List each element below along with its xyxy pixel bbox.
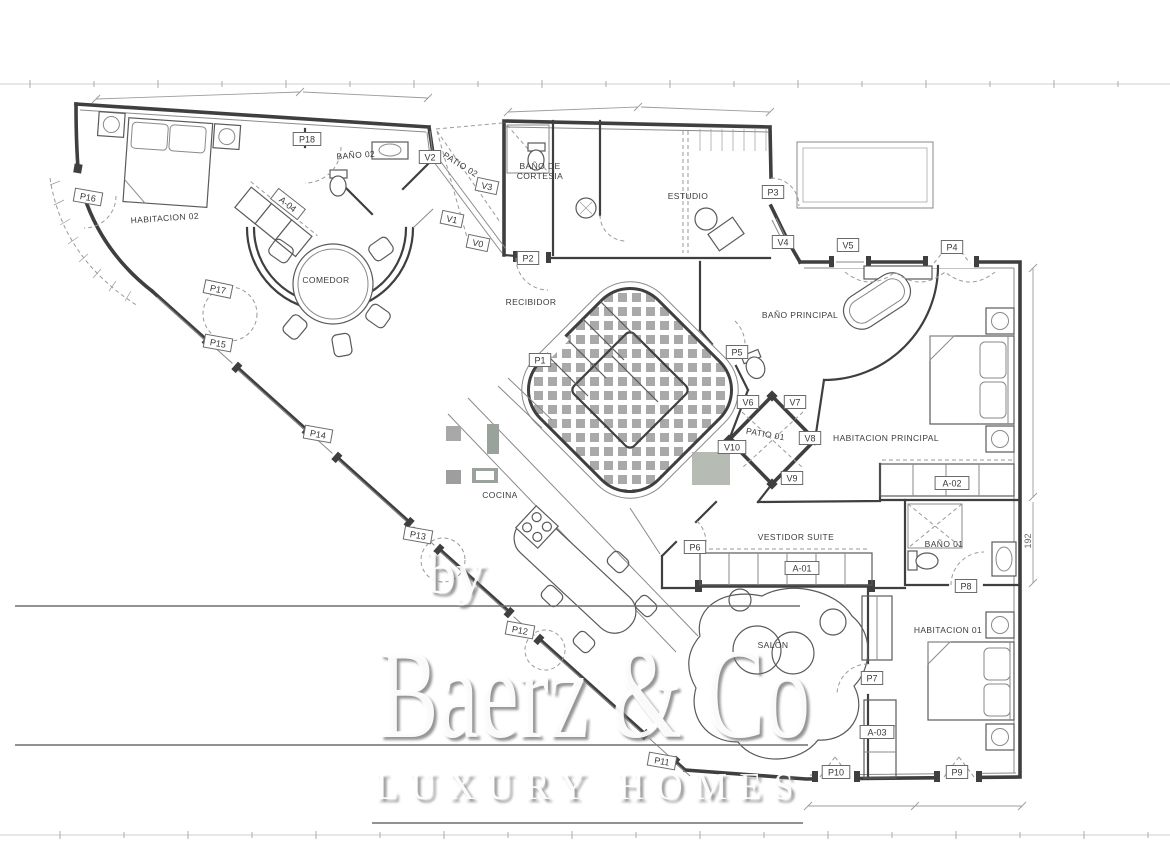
appliance-icon <box>692 452 730 485</box>
svg-text:V8: V8 <box>804 434 815 444</box>
opening-label-v5: V5 <box>837 239 858 252</box>
nightstand-icon <box>986 308 1014 334</box>
nightstand-icon <box>98 112 126 138</box>
opening-label-p4: P4 <box>941 241 962 254</box>
opening-label-v8: V8 <box>799 432 820 445</box>
watermark-tagline: LUXURY HOMES <box>376 766 806 808</box>
room-label-vestidor-suite: VESTIDOR SUITE <box>758 532 834 542</box>
opening-label-v4: V4 <box>772 236 793 249</box>
appliance-icon <box>487 424 499 454</box>
top-ruler <box>0 80 1170 88</box>
opening-label-a-03: A-03 <box>860 726 894 739</box>
room-label-cocina: COCINA <box>482 490 517 500</box>
room-label-comedor: COMEDOR <box>302 275 349 285</box>
room-label-ba-o-principal: BAÑO PRINCIPAL <box>762 310 838 320</box>
watermark: by Baerz & Co LUXURY HOMES <box>15 541 810 823</box>
svg-text:V5: V5 <box>842 241 853 251</box>
room-label-habitacion-principal: HABITACION PRINCIPAL <box>833 433 939 443</box>
svg-text:P5: P5 <box>731 348 742 358</box>
svg-text:V4: V4 <box>777 238 788 248</box>
side-table-icon <box>820 609 846 635</box>
room-label-habitacion-01: HABITACION 01 <box>914 625 982 635</box>
room-label-ba-o-de: BAÑO DE <box>519 161 560 171</box>
nightstand-icon <box>986 426 1014 452</box>
svg-text:V7: V7 <box>789 398 800 408</box>
opening-label-v6: V6 <box>737 396 758 409</box>
opening-label-v7: V7 <box>784 396 805 409</box>
opening-label-p16: P16 <box>73 188 102 206</box>
appliance-icon <box>446 470 461 484</box>
room-label-salon: SALON <box>758 640 789 650</box>
opening-label-p17: P17 <box>203 280 233 298</box>
svg-text:A-02: A-02 <box>942 479 961 489</box>
master-bedroom-furniture <box>880 308 1014 496</box>
opening-label-v2: V2 <box>419 151 440 164</box>
room-label-patio-01: PATIO 01 <box>745 426 785 443</box>
bed-principal <box>930 336 1014 424</box>
opening-label-p6: P6 <box>684 541 705 554</box>
dimension-label-192: 192 <box>1023 533 1033 548</box>
room-label-estudio: ESTUDIO <box>668 191 709 201</box>
opening-label-p10: P10 <box>822 766 850 779</box>
watermark-by: by <box>427 541 485 606</box>
svg-text:A-01: A-01 <box>792 564 811 574</box>
svg-text:P2: P2 <box>522 254 533 264</box>
side-table-icon <box>729 589 751 611</box>
svg-text:P10: P10 <box>828 768 844 778</box>
toilet-icon <box>916 553 938 569</box>
opening-label-v0: V0 <box>466 234 490 251</box>
chair-icon <box>695 208 717 230</box>
floorplan-canvas: by Baerz & Co LUXURY HOMES HABITACION 02… <box>0 0 1170 860</box>
opening-label-p3: P3 <box>762 186 783 199</box>
opening-label-p5: P5 <box>726 346 747 359</box>
svg-text:P7: P7 <box>866 674 877 684</box>
room-label-ba-o-02: BAÑO 02 <box>336 149 375 162</box>
desk-icon <box>708 217 744 251</box>
room-label-habitacion-02: HABITACION 02 <box>130 211 199 226</box>
svg-text:P18: P18 <box>299 135 315 145</box>
bedroom-02-furniture <box>93 112 241 210</box>
svg-text:V2: V2 <box>424 153 435 163</box>
opening-label-a-02: A-02 <box>935 477 969 490</box>
svg-text:P3: P3 <box>767 188 778 198</box>
svg-text:V6: V6 <box>742 398 753 408</box>
svg-text:P1: P1 <box>534 356 545 366</box>
room-label-recibidor: RECIBIDOR <box>506 297 557 307</box>
appliance-icon <box>446 426 461 441</box>
svg-text:P9: P9 <box>951 768 962 778</box>
nightstand-icon <box>213 124 241 150</box>
opening-label-v10: V10 <box>718 441 746 454</box>
opening-label-p2: P2 <box>517 252 538 265</box>
room-label-ba-o-01: BAÑO 01 <box>925 539 964 549</box>
svg-text:A-03: A-03 <box>867 728 886 738</box>
opening-label-p18: P18 <box>293 133 321 146</box>
nightstand-icon <box>986 612 1014 638</box>
opening-label-p8: P8 <box>955 580 976 593</box>
opening-label-p7: P7 <box>861 672 882 685</box>
bottom-ruler <box>0 831 1170 839</box>
opening-label-a-01: A-01 <box>785 562 819 575</box>
room-label-patio-02: PATIO 02 <box>441 150 480 179</box>
svg-text:P6: P6 <box>689 543 700 553</box>
bed-habitacion-01 <box>928 642 1014 720</box>
svg-text:V9: V9 <box>786 474 797 484</box>
svg-text:V10: V10 <box>724 443 740 453</box>
svg-text:P4: P4 <box>946 243 957 253</box>
room-label-cortesia: CORTESIA <box>517 171 564 181</box>
svg-text:P8: P8 <box>960 582 971 592</box>
opening-label-v9: V9 <box>781 472 802 485</box>
terrace <box>797 142 933 208</box>
bedroom-01-furniture <box>862 596 1014 778</box>
watermark-brand: Baerz & Co <box>378 623 810 765</box>
opening-label-p1: P1 <box>529 354 550 367</box>
nightstand-icon <box>986 724 1014 750</box>
opening-label-p9: P9 <box>946 766 967 779</box>
